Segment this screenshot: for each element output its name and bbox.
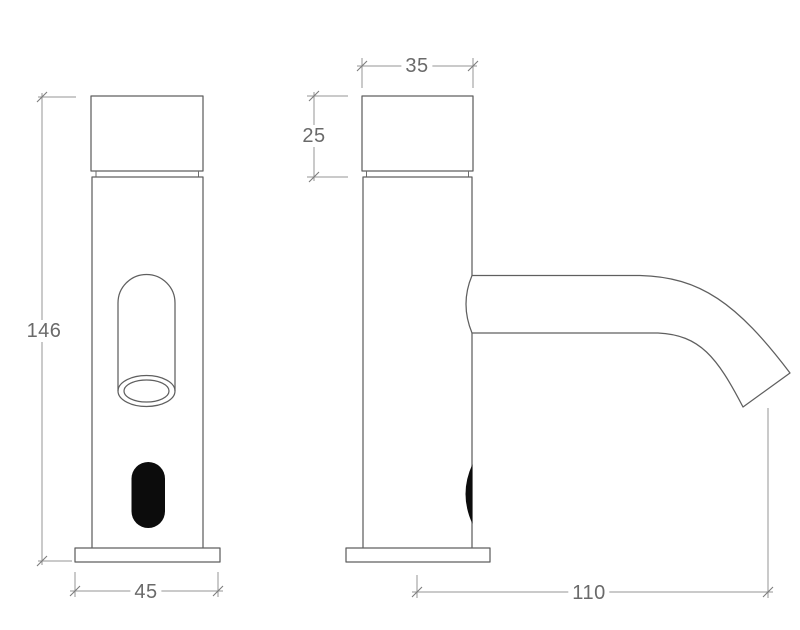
side-sensor-window (466, 464, 473, 524)
side-cap-seam (367, 171, 469, 177)
front-view (75, 96, 220, 562)
front-sensor-window (132, 462, 166, 528)
drawing-linework (0, 0, 800, 630)
front-cap-outline (91, 96, 203, 171)
side-cap-outline (362, 96, 473, 171)
dim-label-side-cap-height: 25 (298, 125, 329, 147)
front-spout-barrel (118, 275, 175, 392)
dim-label-front-height: 146 (23, 320, 66, 342)
side-view (346, 96, 790, 562)
side-body-outline (363, 177, 472, 548)
dim-label-side-cap-width: 35 (401, 55, 432, 77)
faucet-dimension-drawing: 146 45 35 25 110 (0, 0, 800, 630)
front-cap-seam (96, 171, 199, 177)
front-spout-outlet-inner (124, 380, 169, 402)
side-base-plate (346, 548, 490, 562)
dim-label-front-base-width: 45 (130, 581, 161, 603)
side-spout-outline (466, 276, 790, 408)
dim-label-side-spout-reach: 110 (568, 582, 609, 604)
front-base-plate (75, 548, 220, 562)
